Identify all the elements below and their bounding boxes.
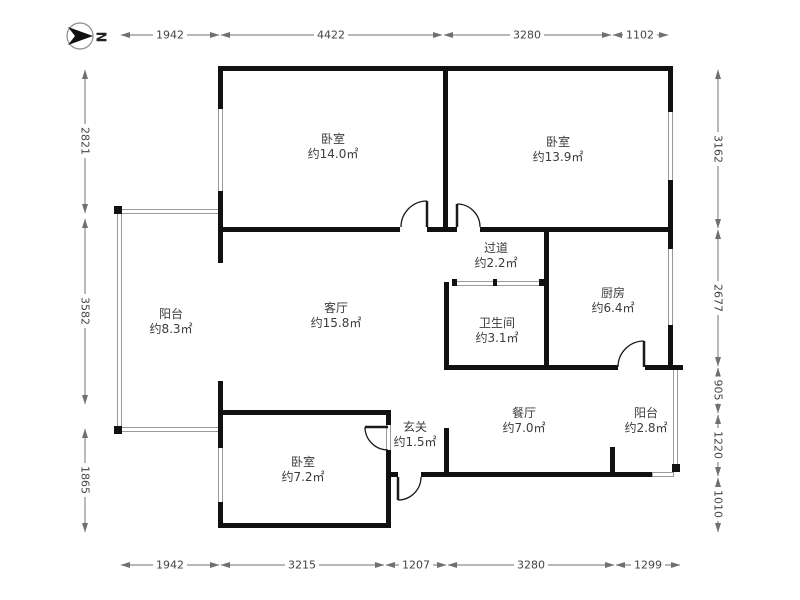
dim-bottom-3: 1207 [399,559,433,572]
railing-balcony-right-side [674,370,678,466]
floor-plan-canvas [0,0,800,600]
wall-post [114,426,122,434]
wall-post [672,464,680,472]
room-label-balcony-left: 阳台 约8.3㎡ [149,307,192,337]
room-area: 约3.1㎡ [475,331,518,346]
door-bedroom-bottom [365,427,388,450]
dim-bottom-2: 3215 [285,559,319,572]
window-kitchen [669,249,673,326]
door-bedroom-top-left [401,201,427,227]
room-area: 约14.0㎡ [308,147,359,162]
room-name: 阳台 [149,307,192,322]
door-entry [398,477,421,500]
dim-bottom-1: 1942 [153,559,187,572]
room-label-balcony-right: 阳台 约2.8㎡ [624,406,667,436]
room-label-living-room: 客厅 约15.8㎡ [311,301,362,331]
room-name: 餐厅 [502,406,545,421]
dim-right-3: 905 [712,377,725,404]
room-name: 卫生间 [475,316,518,331]
room-name: 卧室 [533,135,584,150]
railing-balcony-right-bottom [653,473,674,477]
north-label: N [93,32,108,43]
railing-balcony-left-bottom [122,428,221,432]
room-area: 约2.2㎡ [474,256,517,271]
room-area: 约6.4㎡ [591,301,634,316]
dim-bottom-4: 3280 [514,559,548,572]
dim-right-1: 3162 [712,132,725,166]
dim-left-2: 3582 [79,294,92,328]
room-name: 卧室 [308,132,359,147]
room-name: 厨房 [591,286,634,301]
railing-balcony-left-top [122,210,219,214]
room-label-hallway: 过道 约2.2㎡ [474,241,517,271]
dim-top-4: 1102 [623,29,657,42]
room-area: 约2.8㎡ [624,421,667,436]
dim-right-2: 2677 [712,281,725,315]
railing-balcony-left-side [118,210,122,432]
window-bedroom-top-right [669,112,673,181]
room-area: 约7.2㎡ [281,470,324,485]
room-label-bathroom: 卫生间 约3.1㎡ [475,316,518,346]
sliding-door-bathroom [453,282,544,286]
room-label-bedroom-top-left: 卧室 约14.0㎡ [308,132,359,162]
north-arrow-icon [67,23,93,49]
room-name: 卧室 [281,455,324,470]
room-area: 约8.3㎡ [149,322,192,337]
window-bedroom-bottom [219,448,223,503]
floor-plan: N 卧室 约14.0㎡ 卧室 约13.9㎡ 过道 约2.2㎡ 厨房 约6.4㎡ … [0,0,800,600]
dim-top-2: 4422 [314,29,348,42]
dim-top-3: 3280 [510,29,544,42]
room-name: 过道 [474,241,517,256]
room-area: 约1.5㎡ [393,435,436,450]
dim-right-5: 1010 [712,487,725,521]
threshold-bedroom-bottom-door [387,425,391,451]
room-label-entry: 玄关 约1.5㎡ [393,420,436,450]
room-label-kitchen: 厨房 约6.4㎡ [591,286,634,316]
dim-bottom-5: 1299 [631,559,665,572]
room-area: 约13.9㎡ [533,150,584,165]
room-name: 阳台 [624,406,667,421]
room-name: 玄关 [393,420,436,435]
dim-left-1: 2821 [79,124,92,158]
door-bedroom-top-right [457,204,480,227]
room-area: 约15.8㎡ [311,316,362,331]
room-label-dining-room: 餐厅 约7.0㎡ [502,406,545,436]
dim-top-1: 1942 [153,29,187,42]
room-name: 客厅 [311,301,362,316]
dim-right-4: 1220 [712,428,725,462]
wall-post [114,206,122,214]
dim-left-3: 1865 [79,463,92,497]
room-label-bedroom-bottom: 卧室 约7.2㎡ [281,455,324,485]
room-area: 约7.0㎡ [502,421,545,436]
room-label-bedroom-top-right: 卧室 约13.9㎡ [533,135,584,165]
door-kitchen [618,341,644,367]
window-bedroom-top-left [219,108,223,192]
